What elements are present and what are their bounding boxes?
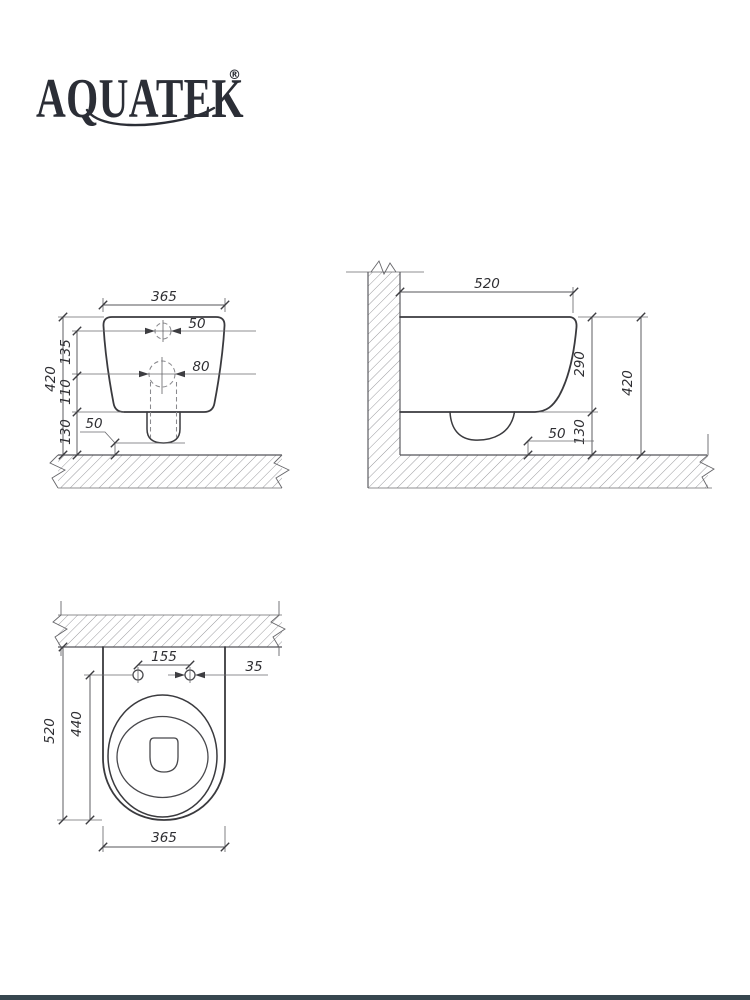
- product-dimension-sheet: AQUATEK ® 50 80 365: [0, 0, 750, 1000]
- brand-logo-text: AQUATEK: [36, 68, 244, 130]
- outlet-pipe-hidden-lines: [151, 382, 177, 438]
- dim-front-inlet-to-outlet: 135: [58, 339, 74, 365]
- dim-front-bottom-to-floor: 130: [58, 419, 74, 445]
- drain-opening: [150, 738, 178, 772]
- wall-hatch: [368, 272, 400, 488]
- top-view-drawing: 155 35 520 440 365: [42, 601, 285, 852]
- dim-side-outlet-floor-gap: 50: [548, 426, 565, 442]
- dim-side-body-height: 290: [572, 351, 588, 377]
- dim-front-width: 365: [151, 289, 177, 305]
- outlet-pipe-side: [450, 412, 515, 440]
- dim-top-seat-hole-spacing: 155: [151, 649, 177, 665]
- bowl-rim: [108, 695, 217, 817]
- front-view-drawing: 50 80 365 420 135 110 130 50: [43, 289, 289, 488]
- floor-hatch: [400, 456, 708, 488]
- bowl-inner: [117, 717, 208, 798]
- dim-front-outlet-dia: 80: [192, 359, 209, 375]
- toilet-body-plan: [103, 647, 225, 820]
- dim-front-outlet-floor-gap: 50: [85, 416, 102, 432]
- wall-hatch: [58, 615, 282, 647]
- dim-side-depth: 520: [474, 276, 500, 292]
- dim-top-seat-hole-dia: 35: [245, 659, 262, 675]
- footer-accent-bar: [0, 995, 750, 1000]
- dim-side-total-height: 420: [620, 370, 636, 396]
- registered-trademark-icon: ®: [228, 68, 241, 83]
- dim-top-width: 365: [151, 830, 177, 846]
- dim-front-inlet-dia: 50: [188, 316, 205, 332]
- side-view-drawing: 520 290 130 420 50: [346, 261, 714, 488]
- floor-hatch: [58, 456, 282, 488]
- brand-logo: AQUATEK ®: [36, 68, 244, 130]
- outlet-pipe-front: [147, 412, 180, 443]
- toilet-body-side: [400, 317, 577, 412]
- dim-top-holes-to-front: 440: [69, 711, 85, 737]
- dim-front-outlet-to-bottom: 110: [58, 379, 74, 405]
- dim-top-depth: 520: [42, 718, 58, 744]
- dim-front-total-height: 420: [43, 366, 59, 392]
